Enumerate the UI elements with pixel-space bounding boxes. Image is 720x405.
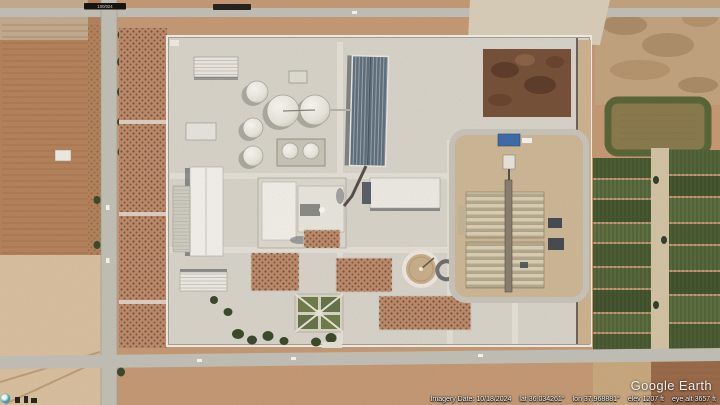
latitude-readout: lat 36.034261° xyxy=(519,396,564,403)
historical-imagery-clock-icon[interactable] xyxy=(1,394,10,403)
satellite-imagery-canvas[interactable]: 100/024 xyxy=(0,0,720,405)
elevation-readout: elev 1207 ft xyxy=(628,396,664,403)
status-bar: Imagery Date: 10/18/2024 lat 36.034261° … xyxy=(430,394,716,405)
imagery-grain xyxy=(0,0,720,405)
eye-altitude-readout: eye alt 3657 ft xyxy=(672,396,716,403)
google-earth-viewport: 100/024 xyxy=(0,0,720,405)
longitude-readout: lon 37.968881° xyxy=(573,396,620,403)
imagery-date-label: Imagery Date: 10/18/2024 xyxy=(430,396,511,403)
google-earth-watermark: Google Earth xyxy=(631,378,712,393)
